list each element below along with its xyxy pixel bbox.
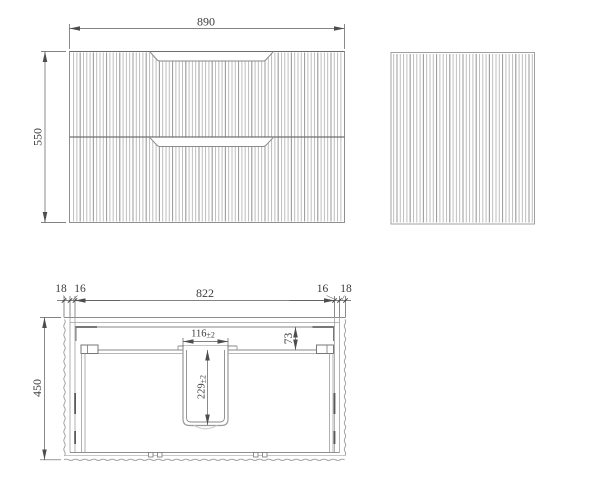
plan-view: 18 16 822 16 18 450 — [30, 283, 352, 460]
dim-front-height — [41, 52, 66, 223]
slide-front-tabs — [149, 453, 268, 458]
top-drawer-handle-recess — [150, 52, 273, 61]
rail-bracket-left — [81, 345, 98, 354]
front-view: 890 550 — [31, 15, 345, 223]
left-panel-thickness-label: 16 — [74, 283, 86, 295]
front-width-label: 890 — [197, 15, 215, 29]
side-fluted-texture-accent — [393, 54, 534, 223]
plan-depth-label: 450 — [30, 379, 44, 397]
cutout-depth-label: 229±2 — [197, 375, 208, 399]
back-offset-label: 73 — [283, 333, 295, 345]
left-side-thickness-label: 18 — [55, 283, 67, 295]
technical-drawing-page: 890 550 — [0, 0, 600, 486]
plan-right-fluted-edge — [344, 320, 345, 456]
vanity-cabinet-drawing: 890 550 — [0, 0, 600, 486]
right-panel-thickness-label: 16 — [317, 283, 329, 295]
plan-front-fluted-edge — [64, 459, 345, 460]
side-view — [391, 53, 535, 225]
front-height-label: 550 — [31, 128, 45, 146]
internal-width-label: 822 — [196, 286, 214, 300]
rail-bracket-right — [317, 345, 334, 354]
right-side-thickness-label: 18 — [340, 283, 352, 295]
plan-left-fluted-edge — [64, 320, 65, 456]
bottom-drawer-handle-recess — [150, 138, 273, 147]
cutout-width-label: 116±2 — [191, 329, 215, 340]
